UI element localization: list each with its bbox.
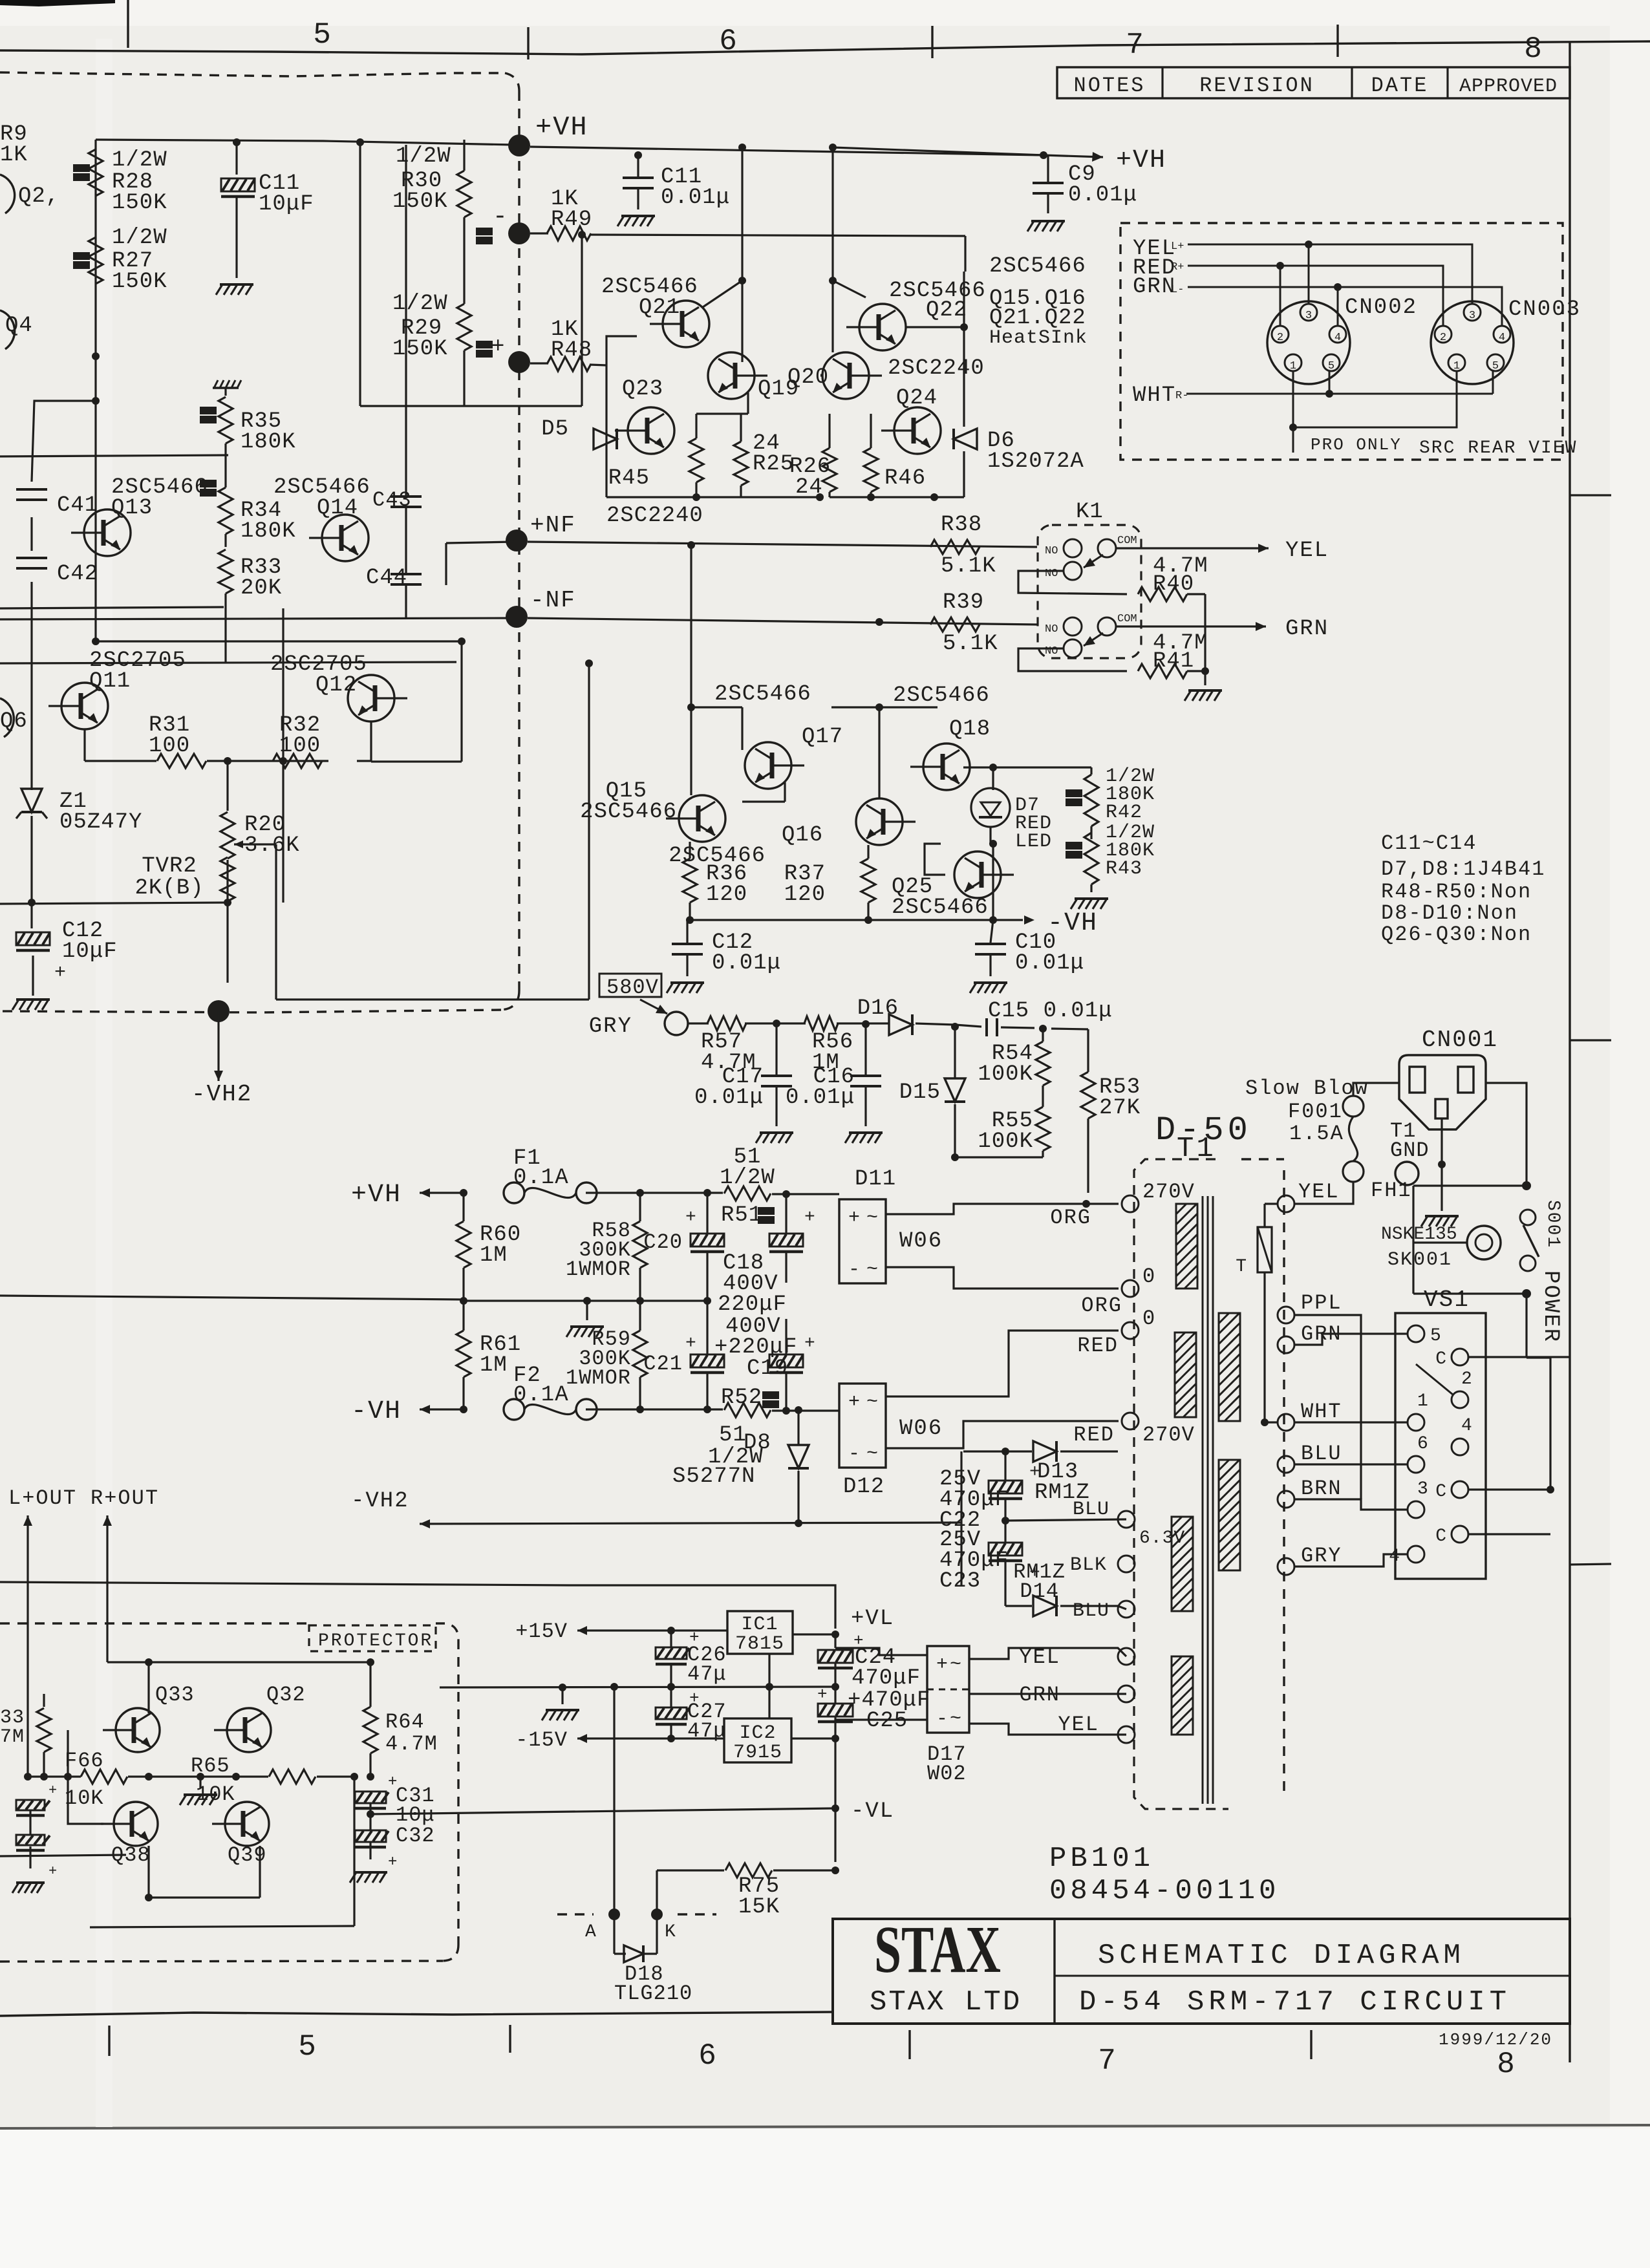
- svg-text:HeatSInk: HeatSInk: [989, 327, 1087, 349]
- svg-text:51: 51: [719, 1423, 747, 1448]
- svg-text:3: 3: [1305, 310, 1312, 322]
- svg-text:WHT: WHT: [1133, 383, 1176, 408]
- svg-text:BLK: BLK: [1070, 1554, 1107, 1576]
- svg-text:SRC REAR VIEW: SRC REAR VIEW: [1419, 438, 1577, 458]
- svg-text:GRY: GRY: [1301, 1544, 1342, 1568]
- svg-text:+NF: +NF: [530, 512, 576, 539]
- svg-text:20K: 20K: [241, 576, 282, 601]
- svg-text:2SC5466: 2SC5466: [580, 800, 677, 824]
- svg-text:C21: C21: [643, 1352, 683, 1376]
- svg-text:S5277N: S5277N: [672, 1464, 755, 1489]
- svg-text:Q14: Q14: [317, 496, 358, 520]
- svg-text:ORG: ORG: [1081, 1294, 1122, 1318]
- svg-text:-15V: -15V: [515, 1728, 568, 1752]
- svg-text:5: 5: [313, 18, 331, 52]
- svg-text:R51: R51: [721, 1203, 762, 1228]
- svg-text:BRN: BRN: [1301, 1477, 1342, 1501]
- svg-text:D16: D16: [857, 996, 899, 1021]
- svg-text:NOTES: NOTES: [1073, 74, 1145, 98]
- svg-text:Q17: Q17: [802, 725, 843, 749]
- svg-text:-: -: [848, 1443, 860, 1465]
- svg-text:R25: R25: [753, 452, 794, 476]
- svg-text:REVISION: REVISION: [1199, 74, 1314, 98]
- svg-text:1WMOR: 1WMOR: [566, 1257, 631, 1281]
- svg-text:R41: R41: [1153, 649, 1194, 674]
- svg-text:5.1K: 5.1K: [943, 632, 998, 656]
- svg-text:~: ~: [950, 1708, 961, 1730]
- svg-text:0: 0: [1142, 1265, 1155, 1289]
- svg-text:VS1: VS1: [1424, 1287, 1470, 1313]
- svg-text:+: +: [685, 1208, 696, 1228]
- svg-text:R48-R50:Non: R48-R50:Non: [1381, 880, 1532, 904]
- svg-text:C11~C14: C11~C14: [1381, 831, 1477, 855]
- svg-text:+VL: +VL: [851, 1607, 894, 1631]
- svg-text:2SC5466: 2SC5466: [989, 254, 1086, 279]
- svg-text:10μF: 10μF: [259, 192, 314, 217]
- svg-text:STAX: STAX: [874, 1912, 1001, 1987]
- svg-text:K1: K1: [1076, 500, 1104, 524]
- svg-text:2SC2240: 2SC2240: [888, 356, 985, 381]
- svg-text:4.7M: 4.7M: [385, 1732, 438, 1756]
- svg-text:PROTECTOR: PROTECTOR: [318, 1631, 433, 1651]
- svg-text:NO: NO: [1045, 623, 1058, 636]
- svg-text:1M: 1M: [480, 1353, 508, 1378]
- svg-text:RM1Z: RM1Z: [1034, 1481, 1090, 1505]
- svg-text:C15 0.01μ: C15 0.01μ: [988, 999, 1113, 1023]
- svg-text:+: +: [48, 1782, 57, 1799]
- svg-text:1/2W: 1/2W: [396, 144, 451, 169]
- svg-text:3.6K: 3.6K: [244, 833, 300, 858]
- svg-text:D8: D8: [744, 1431, 771, 1455]
- svg-text:NSKE135: NSKE135: [1381, 1225, 1457, 1245]
- svg-text:100K: 100K: [978, 1129, 1033, 1154]
- svg-text:R64: R64: [385, 1710, 425, 1734]
- svg-text:10μF: 10μF: [62, 939, 118, 964]
- svg-text:Q20: Q20: [787, 365, 829, 390]
- svg-text:1: 1: [1290, 360, 1296, 372]
- svg-text:Q11: Q11: [89, 669, 131, 694]
- svg-text:R43: R43: [1106, 858, 1142, 880]
- svg-text:COM: COM: [1117, 613, 1137, 625]
- svg-text:8: 8: [1524, 32, 1542, 66]
- svg-text:180K: 180K: [241, 430, 296, 455]
- svg-text:RED: RED: [1073, 1423, 1115, 1447]
- svg-text:GRN: GRN: [1133, 275, 1176, 299]
- svg-text:R+: R+: [1171, 261, 1184, 273]
- svg-text:33: 33: [0, 1707, 25, 1729]
- svg-text:Q18: Q18: [949, 717, 991, 742]
- svg-text:6: 6: [698, 2039, 716, 2073]
- svg-text:WHT: WHT: [1301, 1400, 1342, 1424]
- svg-text:2SC5466: 2SC5466: [893, 683, 990, 708]
- svg-text:YEL: YEL: [1298, 1180, 1340, 1204]
- svg-text:0.1A: 0.1A: [513, 1383, 569, 1407]
- svg-text:-NF: -NF: [530, 587, 576, 614]
- svg-text:-: -: [936, 1708, 948, 1730]
- svg-text:+: +: [817, 1685, 828, 1704]
- svg-text:27K: 27K: [1099, 1096, 1141, 1120]
- svg-text:CN001: CN001: [1422, 1027, 1498, 1053]
- svg-text:S001: S001: [1543, 1200, 1563, 1248]
- svg-text:0.1A: 0.1A: [513, 1166, 569, 1190]
- svg-text:2: 2: [1461, 1369, 1473, 1389]
- svg-text:+: +: [848, 1391, 860, 1413]
- svg-text:+: +: [491, 335, 504, 359]
- svg-text:Q26-Q30:Non: Q26-Q30:Non: [1381, 923, 1532, 947]
- svg-text:0.01μ: 0.01μ: [661, 186, 730, 210]
- svg-text:STAX LTD: STAX LTD: [870, 1986, 1022, 2018]
- svg-text:08454-00110: 08454-00110: [1049, 1875, 1280, 1907]
- svg-text:2: 2: [1440, 332, 1446, 344]
- svg-text:-VH2: -VH2: [351, 1489, 409, 1514]
- svg-text:180K: 180K: [241, 519, 296, 544]
- svg-text:1/2W: 1/2W: [720, 1166, 775, 1190]
- svg-text:GRN: GRN: [1285, 617, 1329, 641]
- svg-text:5.1K: 5.1K: [941, 554, 996, 579]
- svg-text:R65: R65: [191, 1754, 230, 1778]
- svg-text:POWER: POWER: [1538, 1270, 1563, 1343]
- svg-text:W02: W02: [927, 1762, 967, 1786]
- svg-text:D14: D14: [1020, 1579, 1059, 1603]
- svg-text:0.01μ: 0.01μ: [694, 1086, 764, 1110]
- svg-text:NO: NO: [1045, 645, 1058, 658]
- svg-text:1/2W: 1/2W: [392, 292, 448, 316]
- svg-text:120: 120: [784, 883, 826, 907]
- svg-text:3: 3: [1417, 1479, 1429, 1499]
- svg-text:Q2,: Q2,: [18, 184, 59, 209]
- svg-text:1/2W: 1/2W: [112, 226, 167, 250]
- svg-text:COM: COM: [1117, 535, 1137, 547]
- svg-text:1: 1: [1453, 360, 1460, 372]
- svg-text:05Z47Y: 05Z47Y: [59, 810, 142, 835]
- svg-text:24: 24: [795, 475, 823, 500]
- svg-text:7915: 7915: [733, 1742, 782, 1764]
- svg-text:4: 4: [1461, 1416, 1473, 1436]
- svg-text:470μF: 470μF: [852, 1666, 921, 1691]
- svg-text:ORG: ORG: [1050, 1206, 1091, 1230]
- svg-text:BLU: BLU: [1301, 1442, 1342, 1466]
- svg-text:F001: F001: [1288, 1100, 1343, 1124]
- svg-text:TLG210: TLG210: [614, 1982, 692, 2006]
- svg-text:Q13: Q13: [111, 496, 153, 520]
- svg-text:1WMOR: 1WMOR: [566, 1366, 631, 1390]
- svg-text:RED: RED: [1077, 1334, 1119, 1358]
- svg-text:Q22: Q22: [926, 298, 967, 323]
- svg-text:5: 5: [1430, 1326, 1442, 1346]
- svg-text:C: C: [1435, 1349, 1447, 1369]
- svg-text:Slow Blow: Slow Blow: [1245, 1076, 1369, 1100]
- svg-text:Q16: Q16: [782, 823, 823, 848]
- svg-text:C23: C23: [939, 1569, 981, 1594]
- svg-text:0.01μ: 0.01μ: [712, 951, 781, 976]
- svg-text:1999/12/20: 1999/12/20: [1439, 2030, 1552, 2049]
- svg-text:0.01μ: 0.01μ: [1068, 183, 1137, 208]
- svg-text:+: +: [936, 1654, 948, 1676]
- svg-text:15K: 15K: [738, 1895, 780, 1920]
- svg-text:R40: R40: [1153, 572, 1194, 597]
- svg-text:150K: 150K: [112, 270, 167, 294]
- svg-text:1K: 1K: [0, 143, 28, 167]
- svg-text:PPL: PPL: [1301, 1291, 1342, 1315]
- svg-text:APPROVED: APPROVED: [1459, 76, 1558, 98]
- svg-text:R-: R-: [1175, 390, 1188, 402]
- svg-text:R38: R38: [941, 513, 982, 537]
- svg-text:10K: 10K: [65, 1786, 104, 1810]
- svg-text:T: T: [1236, 1257, 1247, 1277]
- svg-text:C44: C44: [366, 566, 407, 590]
- svg-text:+VH: +VH: [351, 1181, 402, 1210]
- svg-text:+: +: [804, 1208, 815, 1228]
- svg-text:Q24: Q24: [896, 386, 937, 411]
- svg-text:NO: NO: [1045, 568, 1058, 580]
- svg-text:TVR2: TVR2: [142, 854, 197, 879]
- svg-text:CN003: CN003: [1508, 297, 1581, 322]
- svg-text:270V: 270V: [1142, 1423, 1195, 1447]
- svg-text:Q23: Q23: [622, 377, 663, 401]
- svg-text:Q33: Q33: [155, 1683, 195, 1707]
- svg-text:220μF: 220μF: [718, 1292, 787, 1317]
- svg-text:W06: W06: [899, 1417, 943, 1441]
- svg-text:L-: L-: [1171, 284, 1184, 296]
- svg-text:2SC5466: 2SC5466: [892, 895, 989, 920]
- svg-text:~: ~: [866, 1391, 878, 1413]
- svg-text:5: 5: [1492, 360, 1499, 372]
- svg-text:0: 0: [1142, 1307, 1155, 1331]
- svg-text:D8-D10:Non: D8-D10:Non: [1381, 901, 1518, 925]
- svg-text:2: 2: [1277, 332, 1283, 344]
- svg-text:4: 4: [1499, 332, 1505, 344]
- svg-text:580V: 580V: [606, 976, 659, 1000]
- svg-text:+: +: [848, 1207, 860, 1229]
- svg-text:L+: L+: [1171, 241, 1184, 253]
- svg-text:~: ~: [950, 1654, 961, 1676]
- svg-text:F66: F66: [65, 1749, 104, 1773]
- svg-text:C: C: [1435, 1526, 1447, 1546]
- svg-text:C20: C20: [643, 1230, 683, 1254]
- svg-text:L+OUT: L+OUT: [8, 1486, 77, 1510]
- svg-text:R42: R42: [1106, 802, 1142, 824]
- svg-text:47μ: 47μ: [687, 1662, 727, 1686]
- svg-text:SCHEMATIC DIAGRAM: SCHEMATIC DIAGRAM: [1098, 1940, 1465, 1972]
- svg-text:C32: C32: [396, 1824, 435, 1848]
- svg-text:7M: 7M: [0, 1726, 25, 1748]
- svg-text:-VH: -VH: [351, 1397, 402, 1426]
- svg-text:1.5A: 1.5A: [1289, 1122, 1344, 1146]
- svg-text:-: -: [848, 1259, 860, 1281]
- svg-text:150K: 150K: [392, 337, 448, 361]
- svg-text:100K: 100K: [978, 1062, 1033, 1087]
- svg-text:Q21: Q21: [639, 295, 680, 320]
- svg-text:D12: D12: [843, 1475, 884, 1499]
- svg-text:100: 100: [149, 734, 190, 758]
- svg-text:D5: D5: [541, 417, 569, 442]
- svg-text:~: ~: [866, 1443, 878, 1465]
- svg-text:0.01μ: 0.01μ: [1015, 951, 1084, 976]
- svg-text:8: 8: [1497, 2048, 1515, 2081]
- svg-text:~: ~: [866, 1259, 878, 1281]
- svg-text:+VH: +VH: [1116, 146, 1166, 175]
- svg-text:R52: R52: [721, 1385, 762, 1410]
- svg-text:R+OUT: R+OUT: [91, 1486, 159, 1510]
- svg-text:+VH: +VH: [535, 112, 588, 143]
- svg-text:C42: C42: [57, 562, 98, 586]
- svg-text:+: +: [804, 1334, 815, 1354]
- svg-text:D-54 SRM-717 CIRCUIT: D-54 SRM-717 CIRCUIT: [1079, 1986, 1511, 2018]
- svg-text:1S2072A: 1S2072A: [987, 449, 1084, 474]
- svg-text:2SC5466: 2SC5466: [714, 682, 811, 707]
- svg-text:2SC2240: 2SC2240: [606, 504, 703, 528]
- svg-text:4: 4: [1334, 332, 1341, 344]
- svg-text:BLU: BLU: [1073, 1600, 1109, 1622]
- svg-text:7: 7: [1098, 2044, 1116, 2078]
- svg-text:C25: C25: [866, 1709, 908, 1733]
- svg-text:IC1: IC1: [741, 1614, 778, 1636]
- svg-text:6: 6: [719, 25, 737, 58]
- svg-text:7: 7: [1126, 28, 1144, 62]
- svg-text:-: -: [493, 203, 508, 231]
- svg-text:K: K: [665, 1922, 676, 1942]
- svg-text:+: +: [48, 1863, 57, 1879]
- svg-text:D11: D11: [855, 1167, 896, 1192]
- svg-text:5: 5: [1328, 360, 1334, 372]
- svg-text:-VH2: -VH2: [191, 1081, 252, 1107]
- svg-text:GND: GND: [1390, 1139, 1430, 1162]
- svg-text:C19: C19: [747, 1356, 788, 1381]
- svg-text:YEL: YEL: [1058, 1713, 1099, 1737]
- svg-text:3: 3: [1469, 310, 1475, 322]
- svg-text:R46: R46: [884, 466, 926, 491]
- svg-text:+: +: [1029, 1462, 1040, 1482]
- svg-text:DATE: DATE: [1371, 74, 1429, 98]
- svg-text:150K: 150K: [392, 189, 448, 214]
- svg-text:SK001: SK001: [1387, 1249, 1452, 1271]
- svg-text:D7,D8:1J4B41: D7,D8:1J4B41: [1381, 857, 1545, 881]
- svg-text:W06: W06: [899, 1229, 943, 1254]
- svg-text:100: 100: [279, 734, 321, 758]
- svg-text:+: +: [388, 1854, 397, 1871]
- svg-text:R49: R49: [551, 208, 592, 232]
- svg-text:Q32: Q32: [266, 1683, 306, 1707]
- svg-text:A: A: [585, 1922, 597, 1942]
- svg-text:1: 1: [1417, 1391, 1429, 1411]
- svg-text:R45: R45: [608, 466, 650, 491]
- svg-text:120: 120: [706, 883, 747, 907]
- svg-text:Q12: Q12: [316, 673, 357, 698]
- svg-text:1/2W: 1/2W: [112, 148, 167, 173]
- svg-text:0.01μ: 0.01μ: [786, 1086, 855, 1110]
- svg-text:C: C: [1435, 1482, 1447, 1502]
- svg-text:7815: 7815: [735, 1633, 784, 1655]
- svg-text:+: +: [54, 962, 66, 984]
- svg-text:R39: R39: [943, 590, 984, 615]
- svg-text:CN002: CN002: [1345, 295, 1417, 320]
- svg-text:6: 6: [1417, 1434, 1429, 1454]
- svg-text:5: 5: [298, 2030, 316, 2064]
- svg-text:+: +: [685, 1334, 696, 1354]
- svg-text:-VL: -VL: [851, 1799, 894, 1824]
- svg-text:PRO ONLY: PRO ONLY: [1311, 435, 1402, 455]
- svg-text:GRY: GRY: [589, 1014, 632, 1039]
- svg-text:270V: 270V: [1142, 1180, 1195, 1204]
- svg-text:PB101: PB101: [1049, 1843, 1154, 1875]
- svg-text:FH1: FH1: [1371, 1179, 1412, 1203]
- svg-text:150K: 150K: [112, 191, 167, 215]
- svg-text:2K(B): 2K(B): [134, 876, 204, 901]
- svg-text:+15V: +15V: [515, 1620, 568, 1643]
- svg-text:1M: 1M: [480, 1243, 508, 1268]
- svg-text:4: 4: [1389, 1546, 1400, 1567]
- svg-text:R48: R48: [551, 338, 592, 363]
- svg-text:LED: LED: [1015, 831, 1052, 853]
- svg-text:IC2: IC2: [739, 1722, 776, 1744]
- svg-text:YEL: YEL: [1285, 539, 1329, 563]
- svg-text:NO: NO: [1045, 545, 1058, 557]
- svg-text:~: ~: [866, 1207, 878, 1229]
- svg-text:D15: D15: [899, 1080, 941, 1105]
